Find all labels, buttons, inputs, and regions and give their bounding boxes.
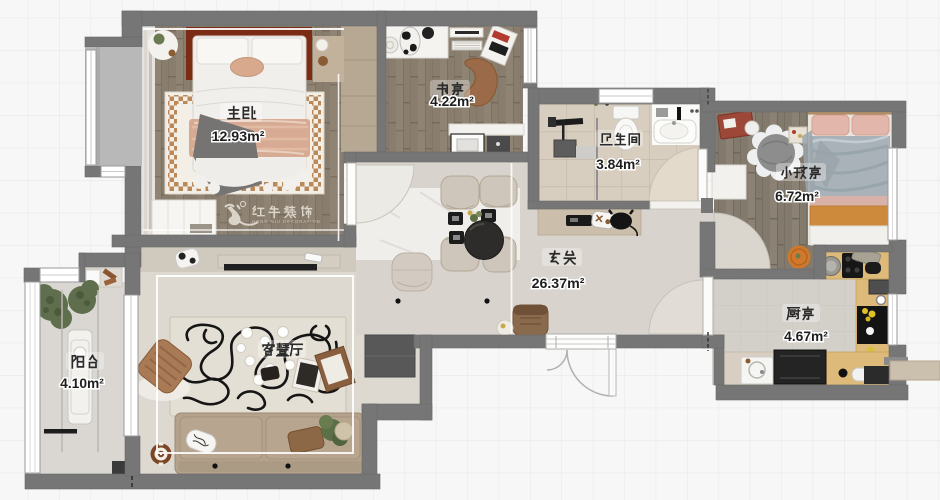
svg-text:3.84m²: 3.84m² xyxy=(596,157,640,172)
svg-text:HONG NIU DECORATION: HONG NIU DECORATION xyxy=(252,219,321,224)
svg-text:26.37m²: 26.37m² xyxy=(532,276,585,292)
svg-text:12.93m²: 12.93m² xyxy=(212,129,265,145)
svg-text:4.67m²: 4.67m² xyxy=(784,329,828,344)
svg-text:4.22m²: 4.22m² xyxy=(430,94,474,109)
svg-text:4.10m²: 4.10m² xyxy=(60,376,104,391)
svg-text:6.72m²: 6.72m² xyxy=(775,189,819,204)
